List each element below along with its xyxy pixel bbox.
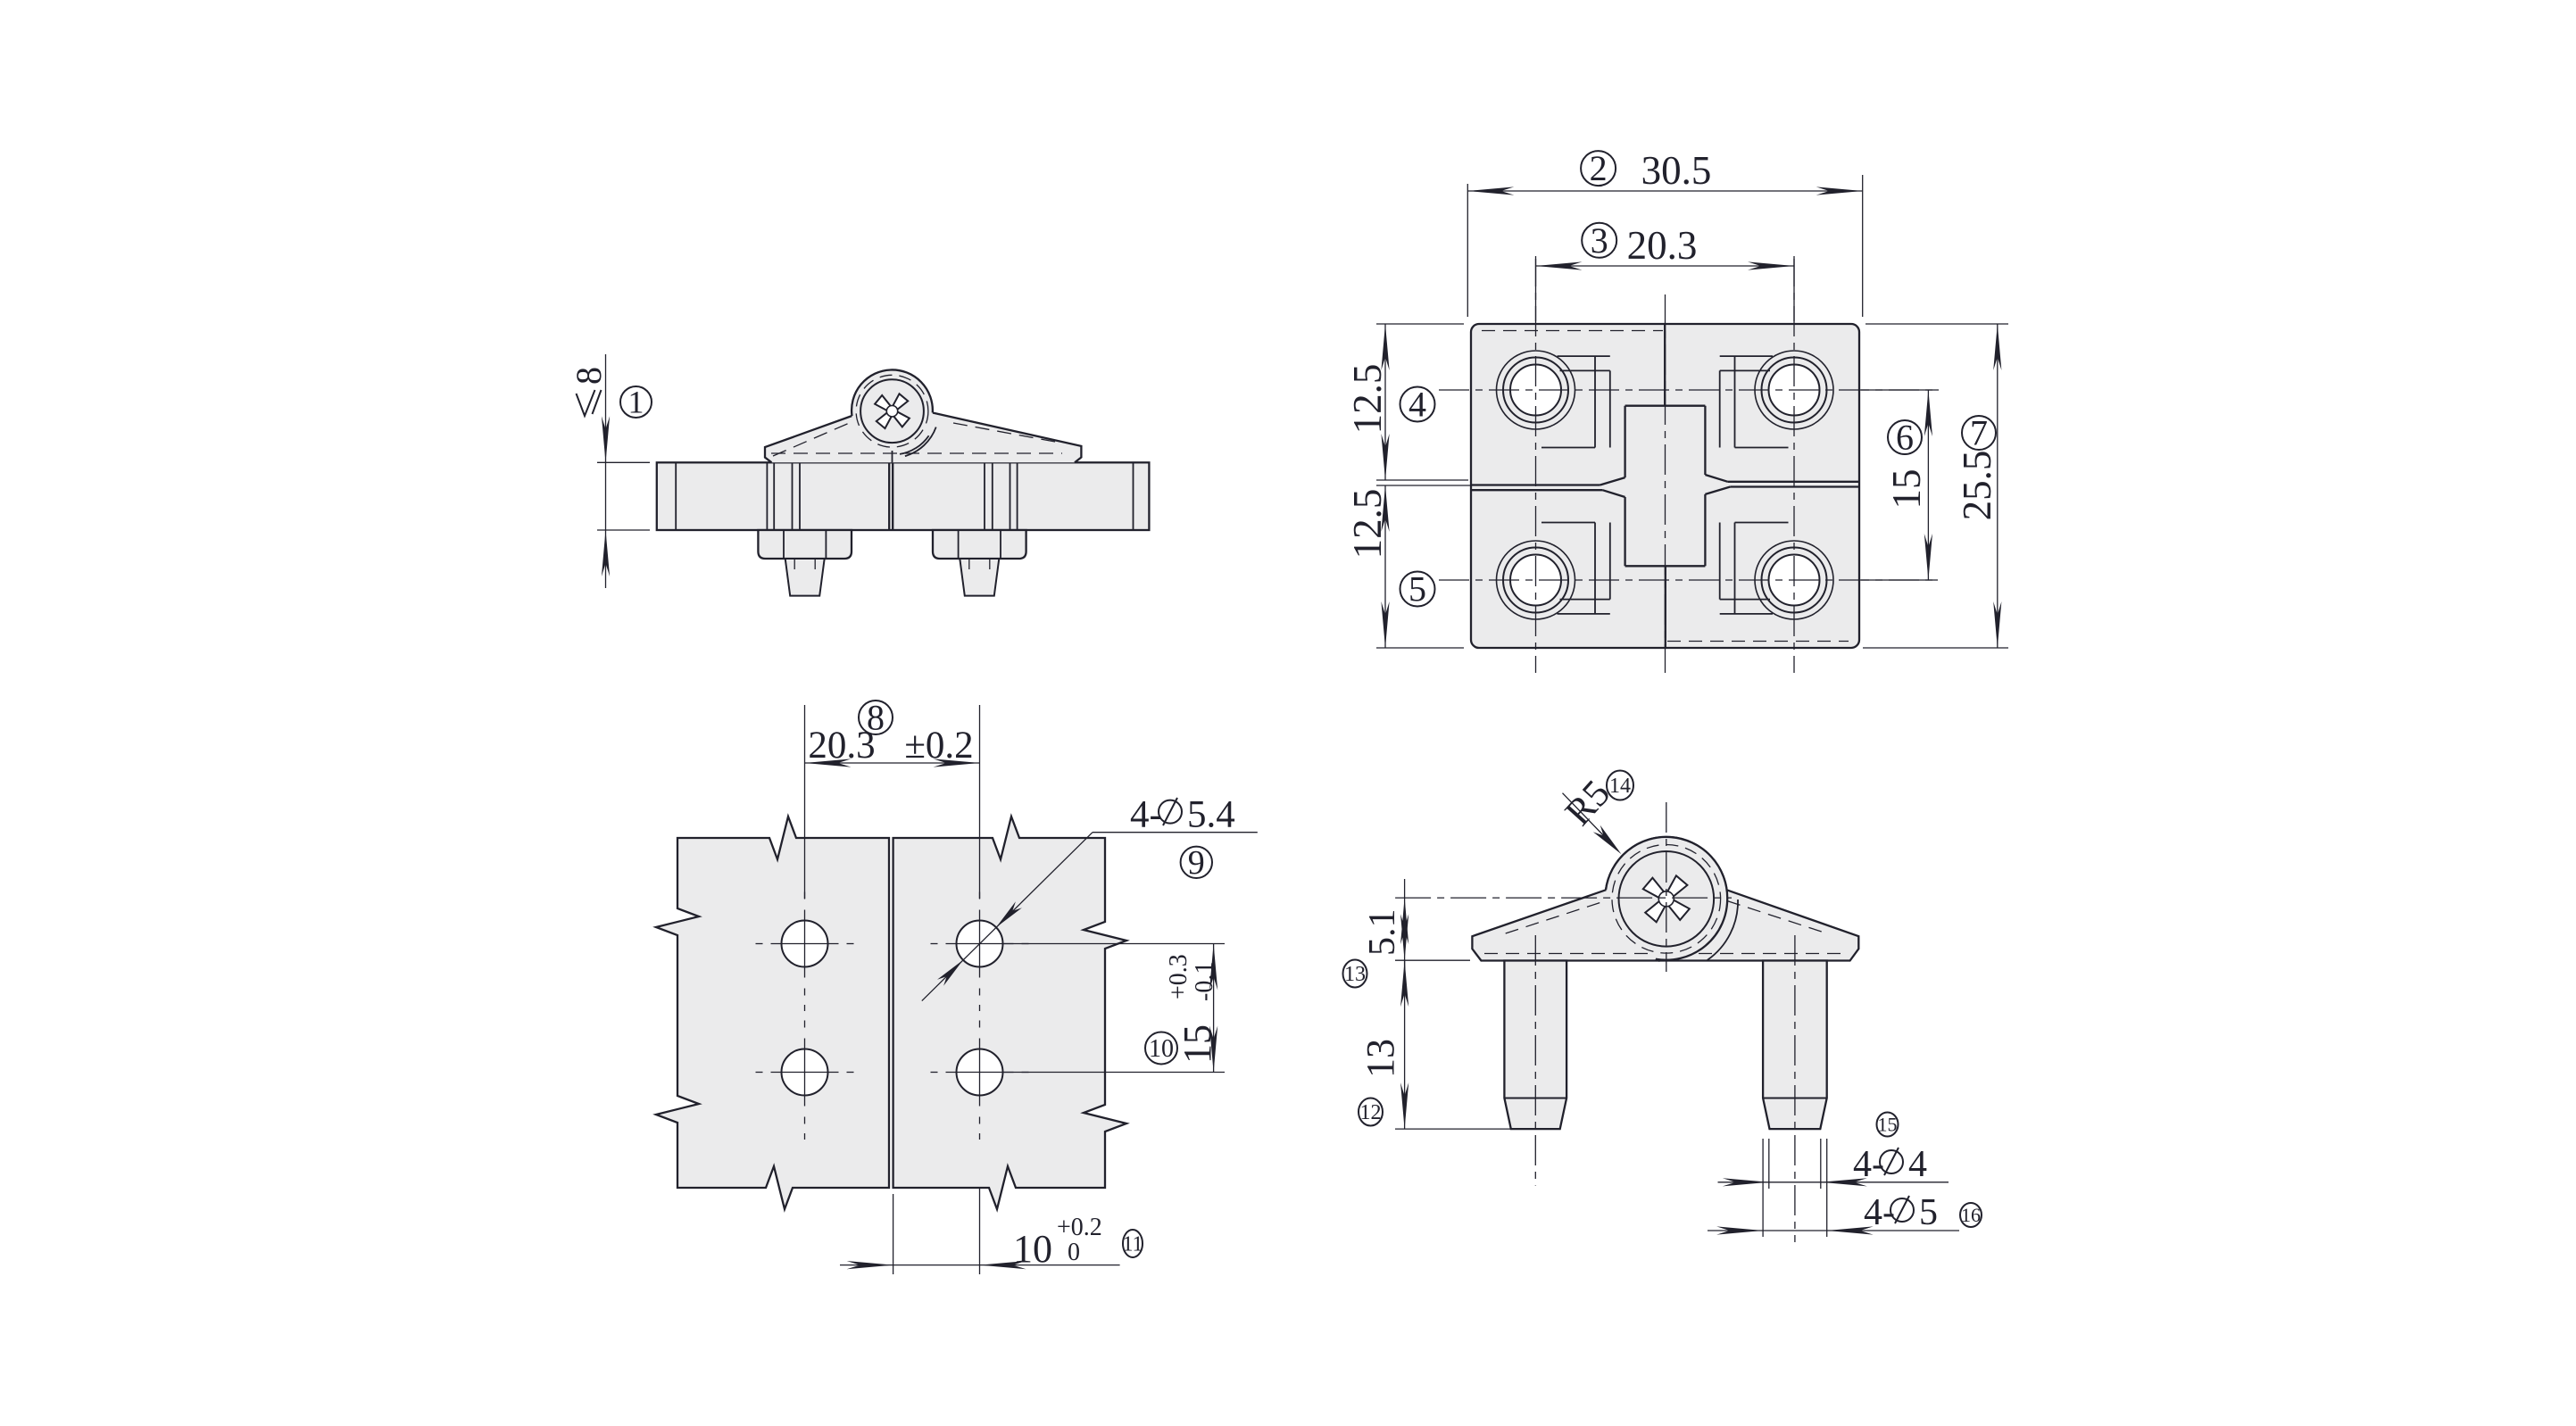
svg-text:4: 4 — [1408, 385, 1426, 425]
svg-text:+0.3: +0.3 — [1165, 954, 1192, 999]
svg-text:10: 10 — [1013, 1227, 1052, 1271]
svg-text:13: 13 — [1344, 963, 1366, 986]
svg-text:5.1: 5.1 — [1362, 908, 1403, 956]
svg-text:11: 11 — [1122, 1233, 1143, 1256]
svg-text:13: 13 — [1359, 1039, 1402, 1078]
svg-text:5.4: 5.4 — [1187, 794, 1235, 836]
svg-text:±0.2: ±0.2 — [904, 725, 973, 767]
svg-text:5: 5 — [1919, 1192, 1938, 1233]
svg-text:6: 6 — [1896, 418, 1914, 458]
svg-text:15: 15 — [1884, 469, 1929, 510]
svg-text:15: 15 — [1878, 1114, 1898, 1136]
svg-text:2: 2 — [1590, 148, 1608, 188]
svg-text:12: 12 — [1360, 1101, 1382, 1124]
svg-text:12.5: 12.5 — [1345, 489, 1390, 560]
svg-text:0: 0 — [1068, 1239, 1080, 1266]
svg-text:-0.1: -0.1 — [1191, 962, 1218, 1001]
svg-text:25.5: 25.5 — [1955, 451, 1999, 521]
svg-text:5: 5 — [1408, 569, 1426, 609]
svg-text:10: 10 — [1149, 1035, 1174, 1063]
svg-text:8: 8 — [569, 367, 609, 385]
svg-text:9: 9 — [1188, 844, 1205, 882]
svg-text:30.5: 30.5 — [1641, 148, 1712, 193]
svg-text:4-: 4- — [1130, 794, 1162, 836]
svg-text:20.3: 20.3 — [1627, 223, 1698, 268]
svg-text:+0.2: +0.2 — [1057, 1214, 1102, 1241]
svg-text:14: 14 — [1609, 775, 1631, 798]
svg-text:4: 4 — [1908, 1144, 1927, 1185]
svg-text:8: 8 — [867, 698, 885, 738]
svg-text:16: 16 — [1961, 1204, 1981, 1226]
svg-text:3: 3 — [1591, 220, 1608, 261]
svg-text:1: 1 — [628, 385, 644, 420]
svg-text:7: 7 — [1970, 413, 1988, 453]
svg-text:15: 15 — [1176, 1024, 1219, 1064]
svg-text:12.5: 12.5 — [1345, 364, 1390, 435]
